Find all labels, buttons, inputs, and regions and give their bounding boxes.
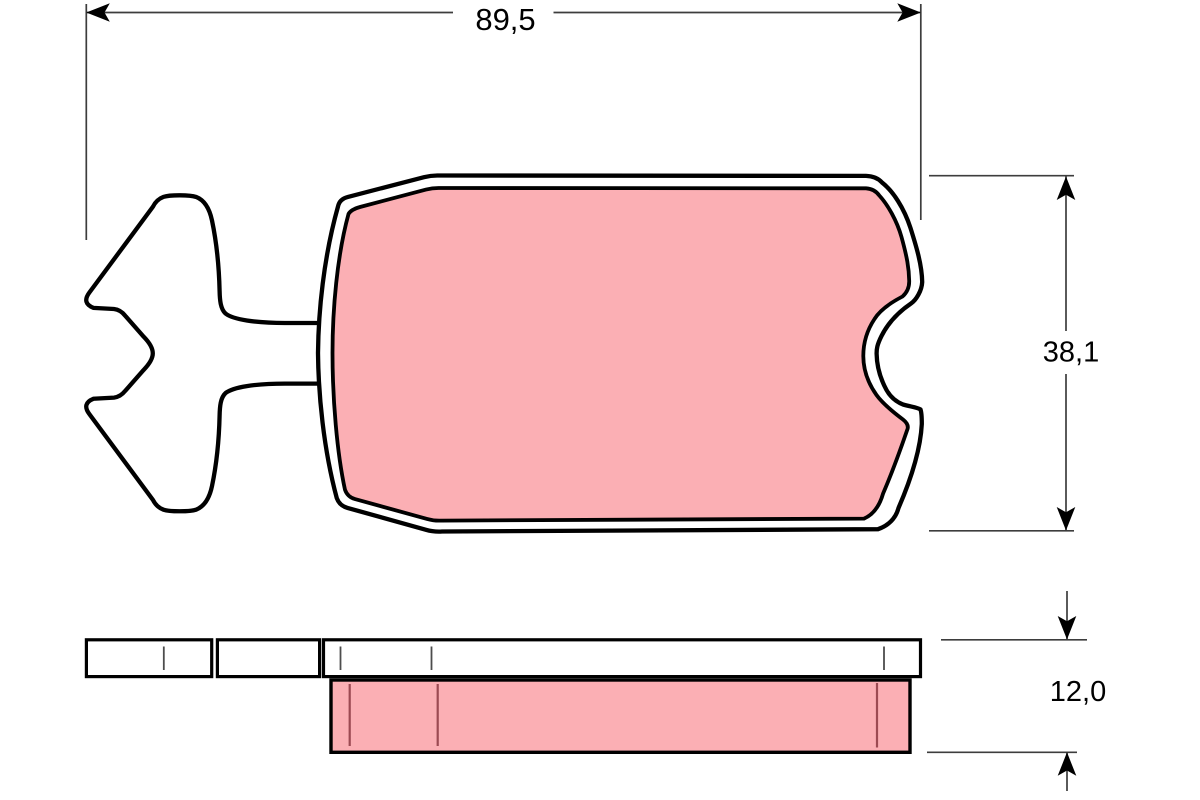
svg-text:89,5: 89,5 [475,2,535,37]
svg-text:12,0: 12,0 [1050,676,1106,708]
svg-text:38,1: 38,1 [1043,337,1099,369]
